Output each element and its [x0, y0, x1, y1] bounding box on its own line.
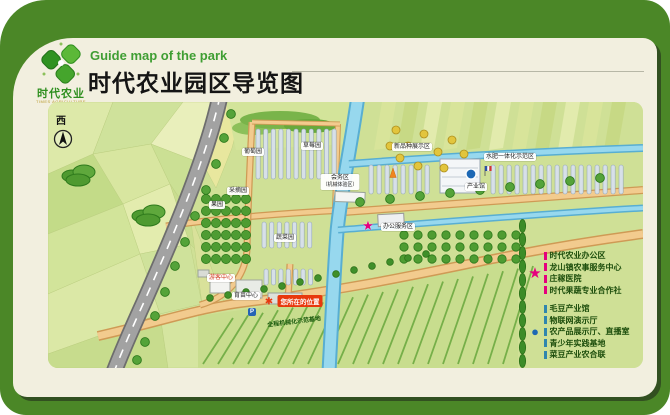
label-vegetable-garden: 蔬菜园 [274, 234, 296, 242]
label-seedling-center: 育苗中心 [232, 292, 260, 300]
legend-item: 龙山镇农事服务中心 [544, 262, 642, 274]
legend-item: 庄稼医院 [544, 273, 642, 285]
label-picking-garden: 采摘园 [227, 187, 249, 195]
legend-item: 时代果蔬专业合作社 [544, 285, 642, 297]
legend-circle-icon: ● [526, 324, 544, 339]
legend-star-icon: ★ [526, 264, 544, 282]
you-are-here-pin-icon: ✱ [265, 297, 273, 308]
legend-star-group: ★ 时代农业办公区 龙山镇农事服务中心 庄稼医院 时代果蔬专业合作社 [526, 250, 642, 296]
compass-icon [55, 131, 72, 148]
label-office-zone: 办公服务区 [381, 223, 415, 231]
logo-name: 时代农业 [30, 89, 92, 99]
you-are-here-badge: 您所在的位置 [278, 295, 323, 307]
parking-icon: P [248, 308, 256, 316]
legend-item: 时代农业办公区 [544, 250, 642, 262]
label-water-fertilizer-zone: 水肥一体化示范区 [484, 153, 536, 161]
legend-item: 物联网演示厅 [544, 315, 642, 327]
label-grape-garden: 葡萄园 [242, 148, 264, 156]
blue-dot-marker [466, 169, 476, 179]
logo: 时代农业 TIMES AGRICULTURE [30, 42, 92, 102]
legend-item: 农产品展示厅、直播室 [544, 326, 642, 338]
label-meeting-zone: 会务区 （机械体验区） [320, 174, 359, 190]
green-frame: 时代农业 TIMES AGRICULTURE Guide map of the … [0, 0, 670, 415]
label-new-variety-zone: 新品种展示区 [392, 143, 432, 151]
park-map: 西 葡萄园 草莓园 新品种展示区 水肥一体化示范区 采摘园 果园 蔬菜园 会务区… [48, 102, 643, 368]
logo-emblem [38, 42, 84, 84]
english-title: Guide map of the park [90, 48, 227, 63]
poster: { "header": { "eng_title": "Guide map of… [0, 0, 670, 415]
legend-item: 毛豆产业馆 [544, 303, 642, 315]
map-legend: ★ 时代农业办公区 龙山镇农事服务中心 庄稼医院 时代果蔬专业合作社 ● 毛豆产… [526, 250, 642, 361]
legend-item: 青少年实践基地 [544, 338, 642, 350]
label-visitor-center: 游客中心 [207, 274, 235, 282]
legend-item: 菜豆产业农合联 [544, 349, 642, 361]
page-title: 时代农业园区导览图 [88, 64, 304, 98]
office-star-marker-icon: ★ [362, 218, 374, 234]
label-industry-hall: 产业馆 [465, 183, 487, 191]
header-divider [292, 71, 644, 72]
label-strawberry-garden: 草莓园 [301, 142, 323, 150]
legend-circle-group: ● 毛豆产业馆 物联网演示厅 农产品展示厅、直播室 青少年实践基地 菜豆产业农合… [526, 303, 642, 361]
label-orchard: 果园 [209, 201, 225, 209]
compass-west-label: 西 [56, 112, 66, 127]
